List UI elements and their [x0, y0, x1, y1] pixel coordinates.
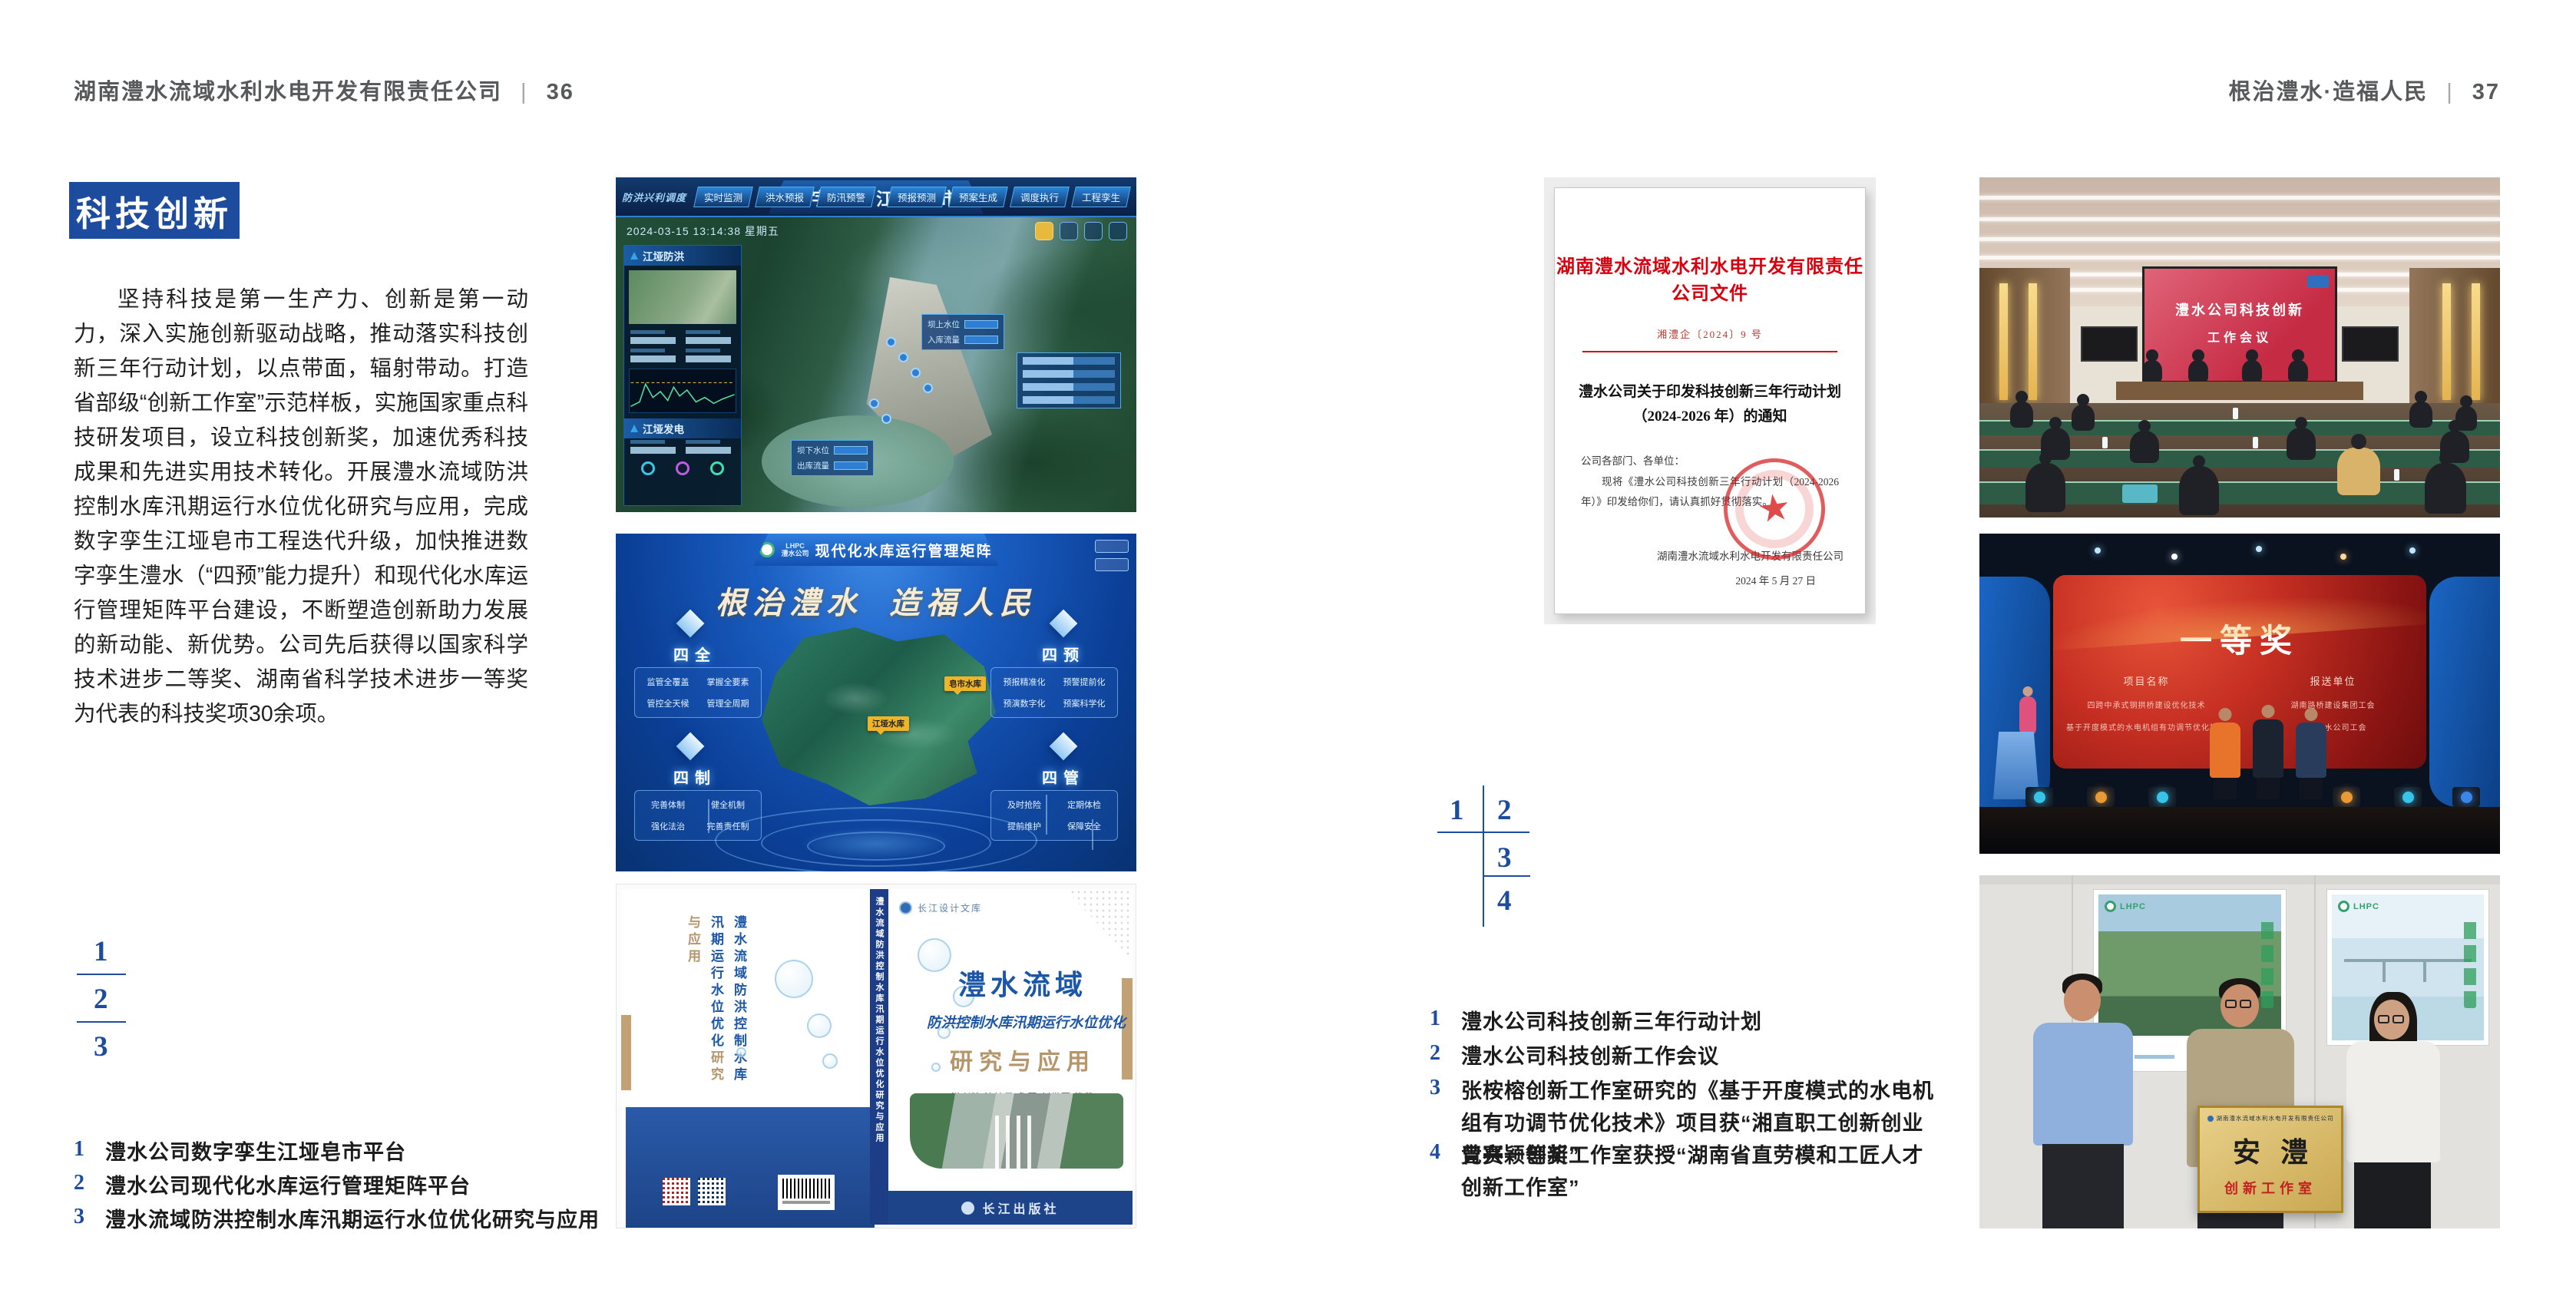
book-title-block: 澧水流域 防洪控制水库汛期运行水位优化 研究与应用 洪兴骏 沈坤民 鲁军 刘世军… [927, 963, 1119, 1103]
stage-floor [1979, 807, 2500, 854]
presenter-legs [2257, 778, 2280, 799]
water-level-chart [629, 369, 736, 413]
column-header: 报送单位 [2240, 673, 2426, 688]
panelist-silhouette [2142, 360, 2162, 383]
map-marker-icon [881, 414, 891, 424]
panelist-silhouette [2288, 360, 2308, 383]
settings-icon[interactable] [1109, 222, 1127, 240]
siguan-icon [1050, 732, 1078, 761]
qr-code [663, 1178, 690, 1205]
winner-legs [2214, 778, 2237, 799]
figure-index-number: 3 [94, 1030, 108, 1063]
water-bottle [2102, 437, 2108, 448]
wall-light [1999, 283, 2008, 400]
siyu-panel: 预报精准化预警提前化 预演数字化预案科学化 [990, 667, 1118, 718]
twin-timestamp: 2024-03-15 13:14:38 星期五 [627, 223, 779, 239]
figure-matrix-platform: LHPC澧水公司 现代化水库运行管理矩阵 根治澧水造福人民 皂市水库 江垭水库 … [616, 534, 1136, 871]
attendee-silhouette [2179, 466, 2219, 515]
book-title-line1: 澧水流域 [927, 963, 1119, 1003]
tab-project-twin[interactable]: 工程孪生 [1071, 187, 1131, 207]
document-signer: 湖南澧水流域水利水电开发有限责任公司 [1555, 547, 1865, 563]
map-marker-icon [886, 337, 896, 347]
attendee-silhouette [2130, 431, 2159, 463]
gauge-icon [710, 461, 724, 475]
tissue-box [2122, 484, 2158, 503]
stage-light [2087, 787, 2115, 807]
figure-index-number: 4 [1497, 884, 1512, 918]
wall-light [2029, 283, 2037, 400]
winner-legs [2300, 778, 2323, 799]
figure-index-number: 1 [94, 935, 108, 968]
index-divider [1483, 875, 1530, 877]
qr-code [698, 1178, 726, 1205]
map-label[interactable]: 江垭水库 [868, 716, 909, 731]
meeting-screen: 澧水公司科技创新 工作会议 [2142, 266, 2337, 383]
light-pillar [1092, 819, 1093, 850]
header-separator: | [2446, 80, 2454, 104]
back-cover-title: 澧水流域防洪控制水库汛期运行水位优化研究与应用 [681, 915, 750, 1096]
wall-light [2442, 283, 2451, 400]
bridge-graphic [2344, 959, 2472, 962]
caption-text: 澧水流域防洪控制水库汛期运行水位优化研究与应用 [105, 1204, 600, 1236]
attendee-silhouette [2025, 463, 2065, 512]
caption-number: 3 [74, 1204, 92, 1230]
map-label[interactable]: 皂市水库 [944, 676, 986, 691]
stat-cell [686, 349, 735, 362]
right-header-title: 根治澧水·造福人民 [2229, 80, 2429, 104]
book-title-line2: 防洪控制水库汛期运行水位优化 [927, 1012, 1119, 1032]
screen-line2: 工作会议 [2144, 327, 2335, 346]
host-silhouette [2019, 696, 2036, 736]
light-pillar [708, 799, 709, 833]
attendee-silhouette [2287, 428, 2316, 460]
attendee-silhouette [2010, 402, 2033, 428]
index-divider [1483, 785, 1484, 927]
caption-row: 1 澧水公司数字孪生江垭皂市平台 [74, 1136, 406, 1169]
caption-row: 2 澧水公司现代化水库运行管理矩阵平台 [74, 1170, 471, 1202]
light-pillar [1046, 795, 1047, 835]
tab-forecast[interactable]: 预报预测 [887, 187, 947, 207]
wall-tv [2342, 326, 2399, 362]
rostrum-table [2116, 382, 2363, 400]
lhpc-logo-icon: LHPC [2338, 901, 2379, 912]
award-title: 一等奖 [2053, 615, 2426, 662]
lhpc-logo-icon: LHPC [2105, 901, 2146, 912]
poster-calligraphy [2261, 916, 2273, 1008]
dam-thumbnail [629, 270, 736, 324]
bubble-graphic [736, 1047, 746, 1057]
locate-icon[interactable] [1084, 222, 1103, 240]
workshop-plaque: 湖南澧水流域水利水电开发有限责任公司 安澧 创新工作室 [2197, 1106, 2343, 1213]
tab-dispatch-execute[interactable]: 调度执行 [1010, 187, 1070, 207]
publisher-logo-icon [961, 1202, 974, 1215]
body-paragraph: 坚持科技是第一生产力、创新是第一动力，深入实施创新驱动战略，推动落实科技创新三年… [74, 283, 528, 732]
left-page-header: 湖南澧水流域水利水电开发有限责任公司|36 [74, 74, 574, 106]
caption-text: 澧水公司现代化水库运行管理矩阵平台 [105, 1170, 471, 1202]
caption-text: 澧水公司数字孪生江垭皂市平台 [105, 1136, 406, 1169]
tab-plan-generate[interactable]: 预案生成 [948, 187, 1008, 207]
book-title-line3: 研究与应用 [927, 1043, 1119, 1076]
stage-light [2394, 787, 2422, 807]
attendee-yellow-coat [2337, 448, 2380, 495]
water-bottle [2233, 408, 2238, 419]
group-title: 四预 [1006, 643, 1121, 665]
figure-book-cover: 澧水流域防洪控制水库汛期运行水位优化研究与应用 澧水流域防洪控制水库汛期运行水位… [616, 884, 1136, 1228]
caption-row: 1 澧水公司科技创新三年行动计划 [1430, 1006, 1936, 1038]
brochure-spread: 湖南澧水流域水利水电开发有限责任公司|36 根治澧水·造福人民|37 科技创新 … [0, 0, 2576, 1306]
plaque-subtitle: 创新工作室 [2200, 1178, 2341, 1198]
upstream-callout: 坝上水位 入库流量 [921, 314, 1004, 350]
water-bottle [2394, 469, 2399, 481]
group-title: 四全 [637, 643, 752, 665]
left-page-number: 36 [547, 80, 574, 104]
figure-official-document: 湖南澧水流域水利水电开发有限责任公司文件 湘澧企〔2024〕9 号 澧水公司关于… [1544, 177, 1876, 624]
caption-text: 澧水公司科技创新工作会议 [1461, 1040, 1719, 1073]
unit-gauges [624, 458, 741, 478]
figure-index-number: 1 [1450, 794, 1464, 827]
document-title: 澧水公司关于印发科技创新三年行动计划 （2024-2026 年）的通知 [1555, 380, 1865, 429]
back-cover-band [626, 1107, 875, 1228]
layers-icon[interactable] [1060, 222, 1078, 240]
twin-right-tabs: 预报预测 预案生成 调度执行 工程孪生 [889, 187, 1129, 207]
menu-button[interactable] [1095, 558, 1129, 571]
caption-row: 2 澧水公司科技创新工作会议 [1430, 1040, 1936, 1073]
halftone-pattern [1033, 889, 1133, 960]
seal-star-icon: ★ [1755, 488, 1793, 530]
downstream-callout: 坝下水位 出库流量 [791, 440, 874, 476]
stage-light [2333, 787, 2360, 807]
map-marker-icon [911, 368, 921, 378]
document-number: 湘澧企〔2024〕9 号 [1555, 326, 1865, 341]
dam-photo [910, 1093, 1123, 1169]
figure-meeting-photo: 澧水公司科技创新 工作会议 [1979, 177, 2500, 517]
figure-award-ceremony: 一等奖 项目名称 四跨中承式钢拱桥建设优化技术 基于开度模式的水电机组有功调节优… [1979, 534, 2500, 854]
figure-digital-twin-platform: 数字孪生江垭皂市 防洪兴利调度 实时监测 洪水预报 防汛预警 预报预测 预案生成… [616, 177, 1136, 512]
index-divider [77, 1021, 126, 1023]
gauge-icon [676, 461, 689, 475]
caption-row: 4 曾兴颖创新工作室获授“湖南省直劳模和工匠人才创新工作室” [1430, 1139, 1940, 1204]
book-back-cover: 澧水流域防洪控制水库汛期运行水位优化研究与应用 [621, 889, 870, 1225]
attendee-silhouette [2072, 405, 2095, 431]
fullscreen-button[interactable] [1095, 540, 1129, 553]
poster-calligraphy [2464, 916, 2476, 1008]
stat-cell [686, 330, 735, 344]
series-badge: 长江设计文库 [899, 901, 982, 914]
glasses-icon [2225, 1000, 2251, 1008]
caption-text: 曾兴颖创新工作室获授“湖南省直劳模和工匠人才创新工作室” [1461, 1139, 1940, 1204]
book-front-cover: 长江设计文库 澧水流域 防洪控制水库汛期运行水位优化 研究与应用 洪兴骏 沈坤民… [888, 889, 1133, 1225]
lhpc-logo-text: LHPC澧水公司 [781, 542, 809, 557]
stage-light [2025, 787, 2053, 807]
map-marker-icon [923, 383, 933, 393]
plaque-title: 安澧 [2200, 1130, 2341, 1170]
ripple-ring [807, 832, 945, 861]
map-marker-icon [898, 352, 908, 362]
truss-light [2256, 546, 2262, 552]
document-salutation: 公司各部门、各单位： [1555, 452, 1865, 468]
power-stats [624, 438, 741, 458]
index-divider [77, 974, 126, 975]
stage-light [2148, 787, 2176, 807]
flood-stats [624, 329, 741, 367]
twin-left-tabs: 防洪兴利调度 实时监测 洪水预报 防汛预警 [622, 187, 874, 207]
right-page-number: 37 [2472, 80, 2500, 104]
truss-light [2340, 554, 2346, 560]
alert-icon[interactable] [1035, 222, 1053, 240]
slide-logo-icon [2307, 275, 2329, 288]
tab-flood-forecast[interactable]: 洪水预报 [755, 187, 815, 207]
tab-realtime-monitor[interactable]: 实时监测 [693, 187, 753, 207]
twin-toolbar [1035, 222, 1127, 240]
gauge-icon [641, 461, 655, 475]
sizhi-icon [676, 732, 705, 761]
project-item: 四跨中承式钢拱桥建设优化技术 [2053, 699, 2240, 710]
lhpc-logo-icon [759, 542, 775, 557]
stage-side-panel [2429, 577, 2500, 807]
matrix-header: LHPC澧水公司 现代化水库运行管理矩阵 [753, 534, 999, 566]
truss-light [2409, 547, 2416, 554]
group-title: 四制 [637, 765, 752, 788]
stat-cell [686, 440, 735, 454]
publisher-name: 长江出版社 [982, 1199, 1059, 1217]
panel-power-title: 江垭发电 [624, 418, 741, 438]
glasses-icon [2378, 1015, 2404, 1023]
tab-flood-warning[interactable]: 防汛预警 [816, 187, 876, 207]
figure-index-number: 2 [1497, 794, 1512, 827]
figure-index-number: 3 [1497, 841, 1512, 875]
caption-text: 澧水公司科技创新三年行动计划 [1461, 1006, 1762, 1038]
group-title: 四管 [1006, 765, 1121, 788]
barcode [778, 1175, 835, 1210]
stage-light [2452, 787, 2480, 807]
caption-number: 1 [74, 1136, 92, 1162]
reservoir-callout [1017, 352, 1121, 408]
attendee-silhouette [2409, 402, 2432, 428]
caption-number: 3 [1430, 1075, 1448, 1101]
caption-row: 3 澧水流域防洪控制水库汛期运行水位优化研究与应用 [74, 1204, 600, 1236]
index-divider [1437, 832, 1529, 833]
panel-flood-title: 江垭防洪 [624, 246, 741, 266]
plaque-logo-icon [2207, 1116, 2214, 1122]
document-header: 湖南澧水流域水利水电开发有限责任公司文件 [1555, 251, 1865, 305]
publisher-band: 长江出版社 [888, 1191, 1133, 1225]
book-spine: 澧水流域防洪控制水库汛期运行水位优化研究与应用 [870, 889, 888, 1225]
bubble-graphic [775, 960, 813, 998]
figure-group-photo: LHPC LHPC [1979, 875, 2500, 1228]
twin-corner-label: 防洪兴利调度 [622, 190, 686, 204]
tan-accent-bar [621, 1015, 631, 1090]
matrix-title: 现代化水库运行管理矩阵 [815, 540, 993, 560]
panelist-silhouette [2188, 360, 2208, 383]
winner-navy [2296, 722, 2326, 778]
red-rule [1582, 351, 1837, 352]
wall-tv [2081, 326, 2138, 362]
award-columns: 项目名称 四跨中承式钢拱桥建设优化技术 基于开度模式的水电机组有功调节优化技术 … [2053, 673, 2426, 732]
document-date: 2024 年 5 月 27 日 [1555, 572, 1865, 587]
changjiang-logo-icon [899, 901, 912, 914]
plaque-header: 湖南澧水流域水利水电开发有限责任公司 [2200, 1114, 2341, 1122]
siquan-panel: 监管全覆盖掌握全要素 管控全天候管理全周期 [634, 667, 762, 718]
document-page: 湖南澧水流域水利水电开发有限责任公司文件 湘澧企〔2024〕9 号 澧水公司关于… [1554, 187, 1866, 614]
caption-number: 4 [1430, 1139, 1448, 1165]
truss-light [2095, 547, 2101, 554]
ceiling-strip [1979, 875, 2500, 884]
panelist-silhouette [2242, 360, 2262, 383]
caption-number: 2 [74, 1170, 92, 1196]
stat-cell [630, 349, 680, 362]
attendee-silhouette [2425, 463, 2466, 514]
truss-light [2171, 554, 2178, 560]
caption-number: 1 [1430, 1006, 1448, 1032]
stat-cell [630, 440, 680, 454]
map-marker-icon [869, 398, 879, 408]
figure-index-number: 2 [94, 983, 108, 1016]
caption-number: 2 [1430, 1040, 1448, 1066]
twin-left-panel: 江垭防洪 江垭发电 [623, 245, 742, 506]
water-bottle [2253, 437, 2258, 448]
header-separator: | [521, 80, 528, 104]
wall-light [2472, 283, 2480, 400]
stat-cell [630, 330, 680, 344]
winner-orange [2210, 722, 2240, 778]
bubble-graphic [807, 1013, 832, 1038]
column-header: 项目名称 [2053, 673, 2240, 688]
left-header-title: 湖南澧水流域水利水电开发有限责任公司 [74, 80, 502, 104]
section-title: 科技创新 [69, 182, 240, 239]
screen-line1: 澧水公司科技创新 [2144, 299, 2335, 319]
bubble-graphic [822, 1053, 838, 1069]
right-page-header: 根治澧水·造福人民|37 [2229, 74, 2500, 106]
presenter-suit [2253, 719, 2283, 778]
